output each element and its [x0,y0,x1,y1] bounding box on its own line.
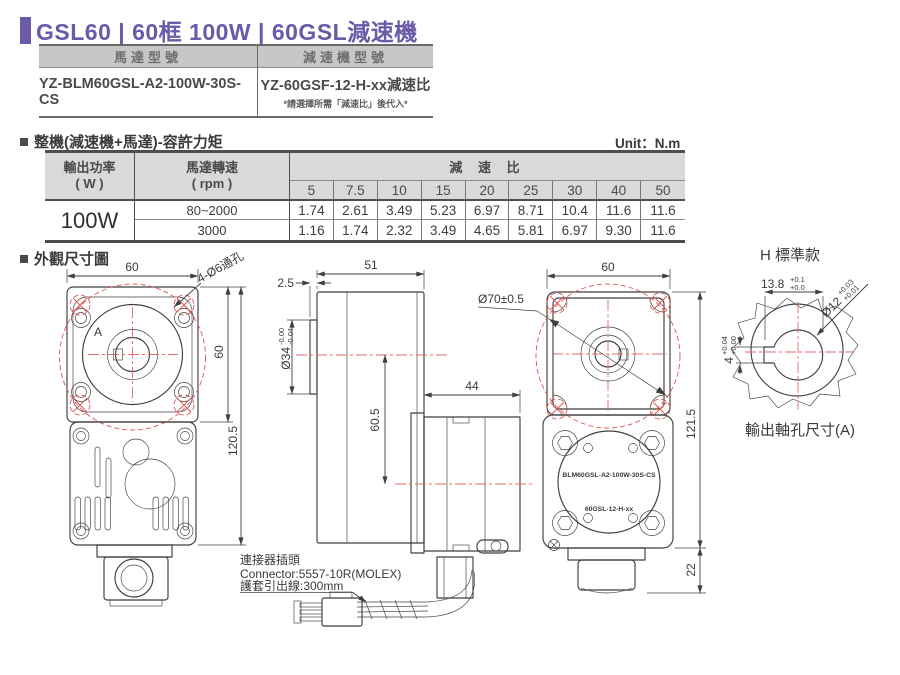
shaft-dim-bore: Ø12 [818,294,844,320]
motor-model-header: 馬達型號 [39,46,258,68]
torque-value: 3.49 [422,220,466,240]
gearbox-model-cell: YZ-60GSF-12-H-xx減速比 *請選擇所需「減速比」後代入* [258,68,433,116]
speed-header-cell: 馬達轉速 ( rpm ) [135,153,290,201]
ratio-col: 15 [422,181,466,201]
side-dim-pilot: Ø34 [279,347,293,370]
torque-value: 1.74 [290,201,334,220]
ratio-col: 7.5 [334,181,378,201]
side-dim-offset: 60.5 [368,408,382,432]
torque-value: 9.30 [597,220,641,240]
header: GSL60 | 60框 100W | 60GSL減速機 [20,13,418,47]
rear-corner-bolts [553,431,665,536]
shaft-detail: H 標準款 13.8 +0.1 +0.0 Ø12 +0.03 +0.01 [720,247,868,439]
torque-section-title: 整機(減速機+馬達)-容許力矩 [20,131,223,152]
side-dim-boss: 2.5 [277,276,294,290]
torque-value: 4.65 [466,220,510,240]
rear-dim-bolt-circle: Ø70±0.5 [478,292,524,306]
page-title: GSL60 | 60框 100W | 60GSL減速機 [36,13,418,47]
power-value-cell: 100W [45,201,135,240]
shaft-key-tol-up: +0.04 [720,336,729,355]
rear-ground-screw [549,540,560,551]
torque-value: 5.81 [509,220,553,240]
torque-value: 1.16 [290,220,334,240]
power-header-cell: 輸出功率 ( W ) [45,153,135,201]
rear-red-marks [536,284,680,428]
speed-row: 3000 [135,220,290,240]
section-bullet-icon [20,138,28,146]
ratio-col: 30 [553,181,597,201]
gearbox-model-value: YZ-60GSF-12-H-xx減速比 [260,74,430,95]
torque-value: 10.4 [553,201,597,220]
connector-label-zh: 連接器插頭 [240,552,300,567]
connector-lead: 護套引出線:300mm [240,578,343,593]
shaft-key-tol-dn: +0.00 [729,336,738,355]
gearbox-model-note: *請選擇所需「減速比」後代入* [283,97,407,110]
gearbox-model-header: 減速機型號 [258,46,433,68]
ratio-col: 50 [641,181,685,201]
unit-label: Unit：N.m [615,132,680,152]
dimension-drawing: A 60 4-Ø6通孔 60 120.5 [0,240,900,675]
ratio-col: 40 [597,181,641,201]
rear-dim-cap: 22 [684,563,698,577]
torque-value: 2.61 [334,201,378,220]
torque-value: 11.6 [641,201,685,220]
front-vent-plate [70,422,196,545]
ratio-col: 20 [466,181,510,201]
shaft-detail-title: H 標準款 [760,247,820,264]
title-accent-bar [20,17,31,44]
ratio-col: 10 [378,181,422,201]
torque-value: 2.32 [378,220,422,240]
side-pilot-tol-dn: -0.04 [286,328,295,345]
side-dim-length: 51 [364,258,378,272]
rear-dim-height: 121.5 [684,409,698,439]
front-dim-total: 120.5 [226,426,240,456]
shaft-detail-caption: 輸出軸孔尺寸(A) [745,422,855,439]
front-dim-width: 60 [125,260,139,274]
ratio-col: 25 [509,181,553,201]
speed-row: 80~2000 [135,201,290,220]
side-view: 2.5 51 Ø34 -0.00 -0.04 60.5 44 [240,258,532,626]
torque-value: 11.6 [597,201,641,220]
ratio-col: 5 [290,181,334,201]
front-connector [97,545,172,606]
model-table: 馬達型號 減速機型號 YZ-BLM60GSL-A2-100W-30S-CS YZ… [39,44,433,118]
rear-view: 60 Ø70±0.5 BLM60GSL-A2-100W-30S-CS 60GSL… [478,260,706,593]
torque-value: 1.74 [334,220,378,240]
rear-bottom-cap [568,548,645,593]
torque-value: 6.97 [553,220,597,240]
rear-gearbox-label: 60GSL-12-H-xx [585,506,634,513]
shaft-flat-tol-dn: +0.0 [790,283,805,292]
rear-motor-label: BLM60GSL-A2-100W-30S-CS [562,472,656,479]
side-pilot-tol-up: -0.00 [277,328,286,345]
front-dim-height: 60 [212,345,226,359]
rear-dim-width: 60 [601,260,615,274]
datasheet-page: GSL60 | 60框 100W | 60GSL減速機 馬達型號 減速機型號 Y… [0,0,900,675]
torque-value: 3.49 [378,201,422,220]
side-dim-motor-length: 44 [465,379,479,393]
front-view: A 60 4-Ø6通孔 60 120.5 [60,249,247,606]
ratio-header-cell: 減 速 比 [290,153,685,181]
torque-value: 11.6 [641,220,685,240]
torque-value: 6.97 [466,201,510,220]
torque-table: 輸出功率 ( W ) 馬達轉速 ( rpm ) 減 速 比 5 7.5 10 1… [45,150,685,243]
shaft-dim-key: 4 [722,357,736,364]
front-red-marks [60,284,206,430]
front-hole-callout: 4-Ø6通孔 [195,249,246,286]
motor-model-value: YZ-BLM60GSL-A2-100W-30S-CS [39,68,258,116]
front-label-a: A [94,325,102,339]
torque-value: 8.71 [509,201,553,220]
torque-value: 5.23 [422,201,466,220]
shaft-dim-flat: 13.8 [761,277,785,291]
